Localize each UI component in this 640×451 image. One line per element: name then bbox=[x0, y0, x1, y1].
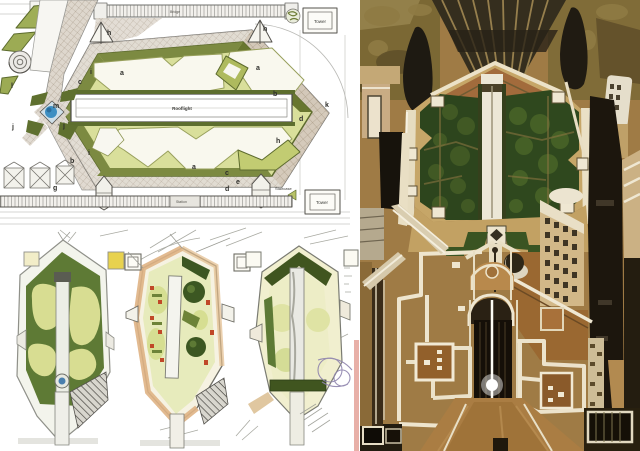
svg-text:m: m bbox=[53, 103, 59, 110]
svg-text:i: i bbox=[90, 69, 92, 76]
svg-text:Rooflight: Rooflight bbox=[172, 106, 192, 111]
svg-text:b: b bbox=[273, 91, 277, 98]
svg-text:a: a bbox=[120, 70, 124, 77]
svg-text:Tower: Tower bbox=[316, 200, 329, 205]
svg-text:l: l bbox=[11, 83, 13, 90]
svg-text:Bridge: Bridge bbox=[170, 10, 180, 14]
svg-text:h: h bbox=[276, 138, 280, 145]
svg-text:a: a bbox=[256, 65, 260, 72]
svg-text:e: e bbox=[236, 179, 240, 186]
svg-text:h: h bbox=[263, 26, 267, 33]
svg-text:Staircase: Staircase bbox=[275, 186, 292, 191]
svg-text:d: d bbox=[299, 116, 303, 123]
svg-text:c: c bbox=[78, 79, 82, 86]
svg-text:g: g bbox=[53, 185, 57, 192]
svg-text:j: j bbox=[11, 124, 14, 131]
svg-text:Station: Station bbox=[176, 200, 187, 204]
svg-text:j: j bbox=[62, 123, 65, 130]
svg-text:k: k bbox=[325, 102, 329, 109]
svg-text:Tower: Tower bbox=[314, 19, 327, 24]
svg-text:h: h bbox=[107, 30, 111, 37]
svg-text:c: c bbox=[225, 170, 229, 177]
svg-text:d: d bbox=[225, 186, 229, 193]
svg-text:a: a bbox=[192, 164, 196, 171]
svg-text:i: i bbox=[88, 150, 90, 157]
svg-text:b: b bbox=[70, 158, 74, 165]
